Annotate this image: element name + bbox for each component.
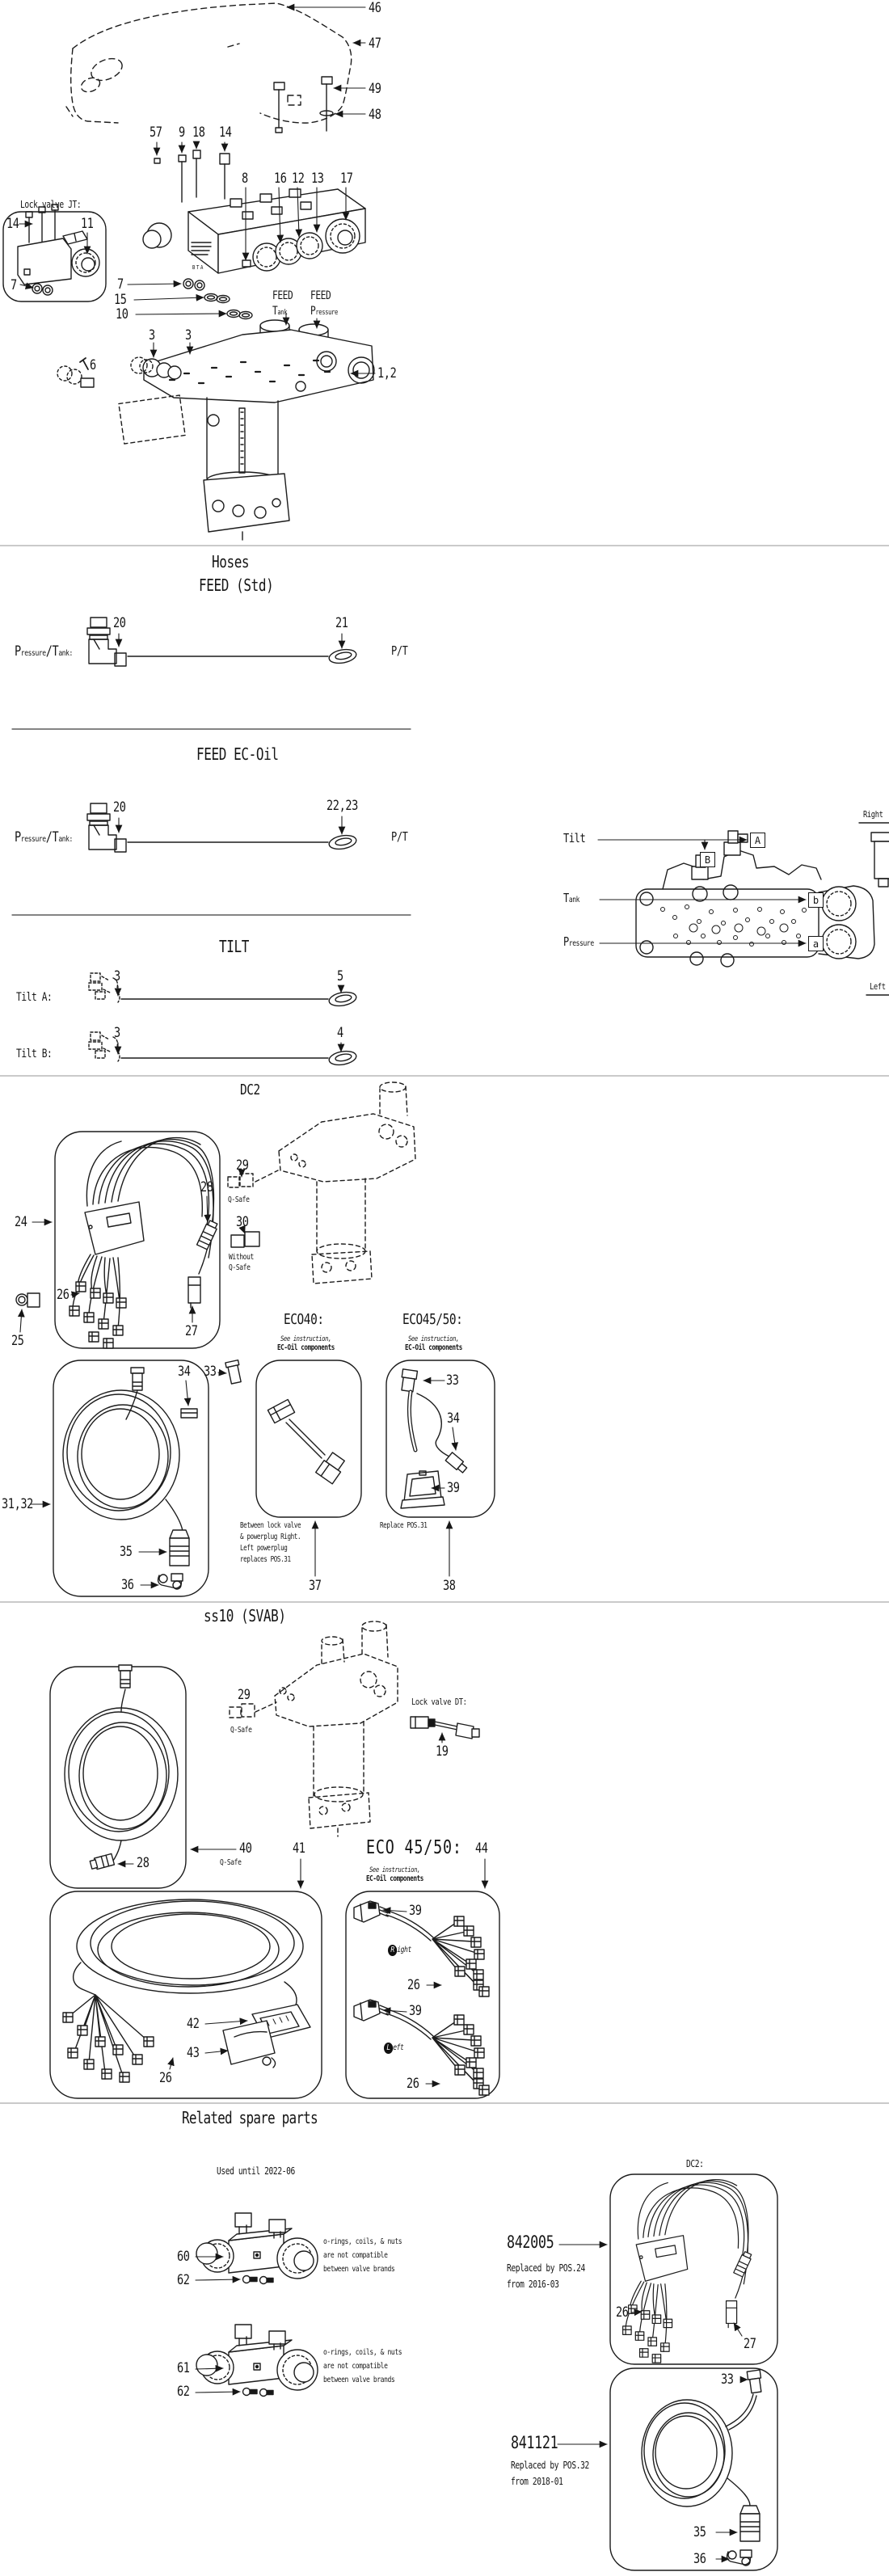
callout-27-dc2: 27	[185, 1324, 198, 1339]
right-cable-badge: Right	[388, 1941, 411, 1956]
callout-27-842005: 27	[744, 2337, 756, 2352]
ss10-harness-box	[50, 1859, 322, 2098]
tilt-a-label: Tilt A:	[16, 992, 52, 1005]
left-rest: eft	[393, 2043, 403, 2052]
ss10-eco-box	[346, 1859, 499, 2098]
callout-1-2: 1,2	[377, 366, 396, 382]
callout-20: 20	[113, 616, 126, 631]
feed-pressure-sub: ressure	[315, 309, 338, 317]
callout-33-841121: 33	[721, 2372, 734, 2388]
replaced-note-842005: Replaced by POS.24 from 2016-03	[507, 2260, 585, 2292]
callout-24: 24	[15, 1215, 27, 1230]
callout-3-tilt-a: 3	[114, 969, 120, 984]
callout-62-a: 62	[177, 2273, 190, 2288]
eco40-see-instruction: See instruction,	[280, 1335, 331, 1343]
callout-44: 44	[475, 1841, 488, 1857]
section-title-hoses: Hoses	[212, 553, 249, 571]
callout-11: 11	[81, 217, 94, 232]
tilt-b-label: Tilt B:	[16, 1048, 52, 1061]
callout-26-left: 26	[407, 2076, 419, 2092]
callout-28-ss10: 28	[137, 1856, 150, 1871]
spare-valve-2-drawing	[196, 2325, 318, 2397]
callout-14-lockbox: 14	[6, 217, 19, 232]
cover-plate-drawing	[66, 3, 352, 123]
eco4550-see-instruction: See instruction,	[408, 1335, 459, 1343]
callout-62-b: 62	[177, 2384, 190, 2400]
manifold-body-drawing	[57, 314, 375, 540]
heading-tilt: TILT	[219, 938, 249, 955]
feed-tank-line1: FEED	[272, 289, 293, 302]
heading-eco4550-ss10: ECO 45/50:	[366, 1838, 462, 1859]
qsafe-label-40: Q-Safe	[220, 1857, 242, 1868]
callout-12: 12	[292, 171, 305, 187]
port-ank: ank:	[58, 649, 73, 658]
port-label-feed-ecoil: Pressure/Tank:	[15, 830, 73, 845]
pressure-big: P	[563, 934, 569, 949]
callout-19: 19	[436, 1744, 449, 1760]
callout-26-right: 26	[407, 1978, 420, 1993]
pt-label-ecoil: P/T	[391, 830, 407, 844]
callout-39-eco: 39	[447, 1481, 460, 1496]
used-until-note: Used until 2022-06	[217, 2166, 295, 2177]
dc2-harness-box	[32, 1132, 220, 1348]
callout-36-dc2: 36	[121, 1578, 134, 1593]
overview-drawing	[598, 823, 889, 995]
feed-ecoil-drawing	[87, 803, 357, 852]
callout-36-841121: 36	[693, 2552, 706, 2567]
eco40-note: Between lock valve & powerplug Right. Le…	[240, 1520, 301, 1566]
callout-18: 18	[192, 125, 205, 141]
feed-tank-sub: ank	[277, 309, 287, 317]
port-p: P	[15, 829, 21, 845]
callout-42: 42	[187, 2017, 200, 2032]
port-label-feed-std: Pressure/Tank:	[15, 644, 73, 660]
callout-16: 16	[274, 171, 287, 187]
overview-right-label: Right	[863, 810, 883, 820]
qsafe-label-dc2: Q-Safe	[228, 1195, 250, 1205]
heading-eco40: ECO40:	[284, 1312, 324, 1328]
section-title-spares: Related spare parts	[182, 2109, 318, 2127]
overview-pressure-label: Pressure	[563, 934, 594, 949]
heading-feed-std: FEED (Std)	[199, 576, 273, 594]
callout-22-23: 22,23	[327, 799, 358, 814]
qsafe-label-ss10: Q-Safe	[230, 1725, 252, 1735]
port-box-a: a	[808, 936, 824, 951]
section-title-ss10: ss10 (SVAB)	[204, 1607, 286, 1625]
dc2-box-label: DC2:	[686, 2159, 704, 2169]
feed-pressure-line1: FEED	[310, 289, 331, 302]
callout-33-dc2: 33	[204, 1364, 217, 1380]
cover-screws-drawing	[274, 77, 333, 133]
lock-valve-dt-drawing	[411, 1717, 479, 1743]
callout-35-841121: 35	[693, 2525, 706, 2540]
callout-46: 46	[369, 1, 381, 16]
right-initial-badge: R	[388, 1945, 397, 1956]
left-cable-badge: Left	[384, 2038, 403, 2054]
callout-47: 47	[369, 36, 381, 52]
port-ank: ank:	[58, 835, 73, 844]
callout-31-32: 31,32	[2, 1497, 33, 1512]
part-number-841121: 841121	[511, 2434, 558, 2453]
callout-4: 4	[337, 1026, 343, 1041]
eco4550-ecoil-components: EC-Oil components	[405, 1344, 462, 1353]
left-initial-badge: L	[384, 2043, 393, 2054]
callout-28-dc2: 28	[200, 1180, 213, 1195]
feed-std-drawing	[87, 618, 357, 666]
compat-note-1: o-rings, coils, & nuts are not compatibl…	[323, 2235, 402, 2276]
callout-40: 40	[239, 1841, 252, 1857]
ss10-see-instruction: See instruction,	[369, 1866, 420, 1874]
callout-25: 25	[11, 1334, 24, 1349]
valve-brand-text: BTA	[192, 265, 204, 272]
right-rest: ight	[397, 1946, 411, 1954]
ss10-ecoil-components: EC-Oil components	[366, 1875, 423, 1884]
callout-3-a: 3	[149, 328, 155, 344]
callout-60: 60	[177, 2249, 190, 2265]
eco4550-box	[386, 1360, 495, 1576]
callout-61: 61	[177, 2361, 190, 2376]
callout-13: 13	[311, 171, 324, 187]
port-ressure: ressure	[21, 835, 46, 844]
callout-7-lockbox: 7	[11, 278, 17, 293]
callout-30: 30	[236, 1215, 249, 1230]
lock-valve-jt-title: Lock valve JT:	[20, 200, 81, 210]
port-box-b: b	[808, 892, 824, 908]
callout-38: 38	[443, 1579, 456, 1594]
feed-tank-label: FEEDTank	[272, 288, 293, 318]
pt-label-std: P/T	[391, 644, 407, 658]
callout-10: 10	[116, 307, 129, 323]
port-box-A: A	[750, 833, 765, 848]
valve-bank-drawing	[143, 150, 365, 273]
callout-14: 14	[219, 125, 232, 141]
port-ressure: ressure	[21, 649, 46, 658]
callout-49: 49	[369, 82, 381, 97]
section-title-dc2: DC2	[240, 1082, 260, 1098]
overview-left-label: Left	[870, 982, 886, 992]
callout-26-dc2: 26	[57, 1288, 70, 1303]
tank-sub: ank	[569, 896, 579, 904]
callout-9: 9	[179, 125, 185, 141]
replaced-note-841121: Replaced by POS.32 from 2018-01	[511, 2457, 589, 2490]
callout-21: 21	[335, 616, 348, 631]
callout-39-right: 39	[409, 1904, 422, 1919]
callout-39-left: 39	[409, 2004, 422, 2019]
heading-eco4550: ECO45/50:	[402, 1312, 462, 1328]
pressure-sub: ressure	[569, 939, 594, 948]
ss10-rotator-drawing	[230, 1621, 398, 1836]
callout-3-b: 3	[185, 328, 192, 344]
callout-57: 57	[150, 125, 162, 141]
callout-3-tilt-b: 3	[114, 1026, 120, 1041]
callout-29-dc2: 29	[236, 1158, 249, 1174]
heading-feed-ecoil: FEED EC-Oil	[196, 745, 279, 763]
callout-37: 37	[309, 1579, 322, 1594]
callout-29-ss10: 29	[238, 1688, 251, 1703]
seal-kit-drawing	[128, 279, 252, 319]
tilt-rows-drawing	[89, 973, 357, 1067]
feed-pressure-label: FEEDPressure	[310, 288, 338, 318]
overview-tank-label: Tank	[563, 891, 579, 905]
callout-48: 48	[369, 108, 381, 123]
port-p: P	[15, 643, 21, 660]
callout-8: 8	[242, 171, 248, 187]
callout-34-eco: 34	[447, 1411, 460, 1427]
callout-17: 17	[340, 171, 353, 187]
tank-big: T	[563, 891, 569, 905]
callout-6: 6	[90, 358, 96, 373]
callout-35-dc2: 35	[120, 1545, 133, 1560]
port-box-B: B	[700, 852, 715, 867]
lock-valve-dt-title: Lock valve DT:	[411, 1697, 467, 1707]
part-number-842005: 842005	[507, 2233, 554, 2253]
dc2-rotator-drawing	[255, 1082, 415, 1284]
callout-26-ss10: 26	[159, 2071, 172, 2086]
box-841121	[558, 2368, 777, 2570]
port-t: /T	[46, 829, 59, 845]
callout-26-842005: 26	[616, 2305, 629, 2321]
port-t: /T	[46, 643, 59, 660]
dc2-qsafe-parts	[228, 1174, 259, 1247]
without-qsafe-label: Without Q-Safe	[229, 1252, 254, 1273]
compat-note-2: o-rings, coils, & nuts are not compatibl…	[323, 2346, 402, 2387]
replace-pos31-note: Replace POS.31	[380, 1520, 427, 1532]
parts-diagram-page: 46 47 49 48 57 9 18 14 8 16 12 13 17 Loc…	[0, 0, 889, 2576]
diagram-artwork	[0, 0, 889, 2576]
callout-43: 43	[187, 2046, 200, 2061]
callout-34-dc2: 34	[178, 1364, 191, 1380]
dc2-part25-drawing	[16, 1293, 40, 1332]
overview-tilt-label: Tilt	[563, 832, 585, 845]
callout-20-ecoil: 20	[113, 800, 126, 816]
spare-valve-1-drawing	[196, 2213, 318, 2284]
callout-5: 5	[337, 969, 343, 984]
callout-7: 7	[117, 277, 124, 293]
eco40-ecoil-components: EC-Oil components	[277, 1344, 335, 1353]
dc2-coil-cable-box	[31, 1360, 242, 1596]
callout-41: 41	[293, 1841, 305, 1857]
callout-33-eco: 33	[446, 1373, 459, 1389]
